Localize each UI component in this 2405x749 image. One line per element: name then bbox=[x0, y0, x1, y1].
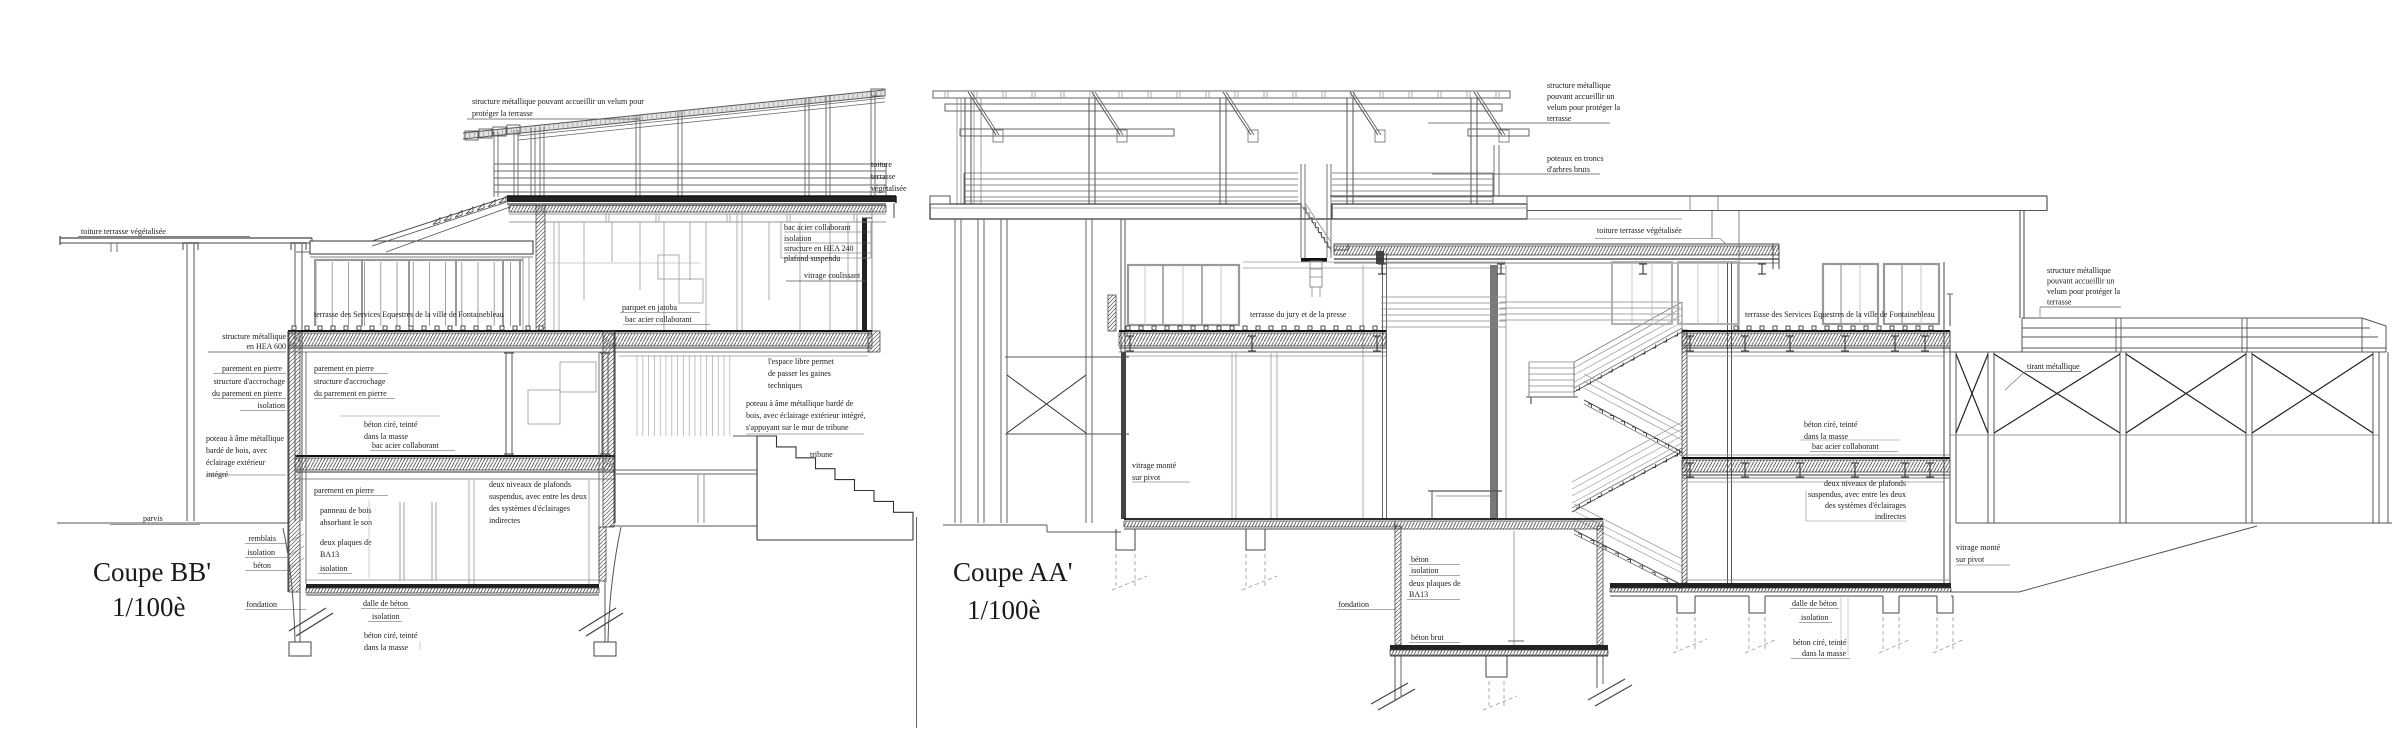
svg-text:végétalisée: végétalisée bbox=[871, 184, 907, 193]
svg-text:béton ciré, teinté: béton ciré, teinté bbox=[364, 631, 418, 640]
svg-text:pouvant accueillir un: pouvant accueillir un bbox=[1547, 92, 1615, 101]
svg-text:parement en pierre: parement en pierre bbox=[314, 486, 374, 495]
svg-text:plafond suspendu: plafond suspendu bbox=[784, 254, 840, 263]
svg-text:vitrage monté: vitrage monté bbox=[1132, 461, 1177, 470]
svg-text:béton: béton bbox=[1411, 555, 1429, 564]
svg-text:d'arbres bruts: d'arbres bruts bbox=[1547, 165, 1590, 174]
svg-text:remblais: remblais bbox=[248, 534, 276, 543]
svg-text:tirant métallique: tirant métallique bbox=[2027, 362, 2080, 371]
svg-text:isolation: isolation bbox=[1411, 566, 1439, 575]
svg-text:isolation: isolation bbox=[372, 612, 400, 621]
svg-text:isolation: isolation bbox=[247, 548, 275, 557]
svg-text:parquet en jatoba: parquet en jatoba bbox=[622, 303, 678, 312]
svg-text:terrasse des Services Equestre: terrasse des Services Equestres de la vi… bbox=[314, 310, 504, 319]
svg-text:parement en pierre: parement en pierre bbox=[314, 364, 374, 373]
svg-text:de passer les gaines: de passer les gaines bbox=[768, 369, 831, 378]
svg-text:structure métallique: structure métallique bbox=[222, 332, 286, 341]
svg-text:poteau à âme métallique: poteau à âme métallique bbox=[206, 434, 284, 443]
svg-text:pouvant accueillir un: pouvant accueillir un bbox=[2047, 277, 2115, 286]
svg-text:BA13: BA13 bbox=[1409, 590, 1428, 599]
svg-text:isolation: isolation bbox=[1801, 613, 1829, 622]
svg-text:tribune: tribune bbox=[810, 450, 833, 459]
svg-text:dalle de béton: dalle de béton bbox=[1792, 599, 1837, 608]
svg-text:isolation: isolation bbox=[784, 234, 812, 243]
svg-text:indirectes: indirectes bbox=[1875, 512, 1906, 521]
svg-text:béton ciré, teinté: béton ciré, teinté bbox=[1793, 638, 1847, 647]
svg-text:Coupe BB': Coupe BB' bbox=[93, 557, 211, 587]
svg-text:toiture terrasse végétalisée: toiture terrasse végétalisée bbox=[81, 227, 166, 236]
svg-text:deux niveaux de plafonds: deux niveaux de plafonds bbox=[489, 480, 571, 489]
svg-text:structure métallique: structure métallique bbox=[1547, 81, 1611, 90]
svg-text:terrasse des Services Equestre: terrasse des Services Equestres de la vi… bbox=[1745, 310, 1935, 319]
svg-text:éclairage extérieur: éclairage extérieur bbox=[206, 458, 266, 467]
svg-text:du parrement en pierre: du parrement en pierre bbox=[314, 389, 387, 398]
svg-text:structure métallique: structure métallique bbox=[2047, 266, 2111, 275]
svg-text:protéger la terrasse: protéger la terrasse bbox=[472, 109, 533, 118]
svg-text:béton brut: béton brut bbox=[1411, 633, 1444, 642]
svg-text:deux niveaux de plafonds: deux niveaux de plafonds bbox=[1824, 479, 1906, 488]
svg-text:parement en pierre: parement en pierre bbox=[222, 364, 282, 373]
svg-text:intégré: intégré bbox=[206, 470, 229, 479]
svg-text:velum pour protéger la: velum pour protéger la bbox=[1547, 103, 1621, 112]
svg-text:bac acier collaborant: bac acier collaborant bbox=[1812, 442, 1879, 451]
svg-text:béton: béton bbox=[253, 561, 271, 570]
svg-text:velum pour protéger la: velum pour protéger la bbox=[2047, 287, 2121, 296]
svg-text:dans la masse: dans la masse bbox=[364, 432, 408, 441]
svg-text:bac acier collaborant: bac acier collaborant bbox=[625, 315, 692, 324]
svg-text:l'espace libre permet: l'espace libre permet bbox=[768, 357, 835, 366]
svg-text:dans la masse: dans la masse bbox=[1804, 432, 1848, 441]
svg-text:bac acier collaborant: bac acier collaborant bbox=[784, 223, 851, 232]
svg-text:dalle de béton: dalle de béton bbox=[363, 599, 408, 608]
svg-text:toiture terrasse végétalisée: toiture terrasse végétalisée bbox=[1597, 226, 1682, 235]
svg-text:fondation: fondation bbox=[1338, 600, 1369, 609]
svg-text:dans la masse: dans la masse bbox=[1802, 649, 1846, 658]
svg-text:techniques: techniques bbox=[768, 381, 802, 390]
svg-text:béton ciré, teinté: béton ciré, teinté bbox=[364, 420, 418, 429]
svg-text:1/100è: 1/100è bbox=[112, 592, 186, 622]
svg-text:fondation: fondation bbox=[246, 600, 277, 609]
svg-text:parvis: parvis bbox=[143, 514, 163, 523]
svg-text:absorbant le son: absorbant le son bbox=[320, 518, 372, 527]
svg-text:poteau à âme métallique bardé: poteau à âme métallique bardé de bbox=[746, 399, 854, 408]
svg-text:vitrage monté: vitrage monté bbox=[1956, 543, 2001, 552]
svg-text:BA13: BA13 bbox=[320, 550, 339, 559]
svg-text:terrasse: terrasse bbox=[871, 172, 896, 181]
svg-text:s'appuyant sur le mur de tribu: s'appuyant sur le mur de tribune bbox=[746, 423, 849, 432]
svg-text:des systèmes d'éclairages: des systèmes d'éclairages bbox=[489, 504, 570, 513]
svg-text:suspendus, avec entre les deux: suspendus, avec entre les deux bbox=[489, 492, 587, 501]
svg-text:deux plaques de: deux plaques de bbox=[1409, 579, 1461, 588]
svg-text:structure en HEA 240: structure en HEA 240 bbox=[784, 244, 854, 253]
svg-text:bac acier collaborant: bac acier collaborant bbox=[372, 441, 439, 450]
svg-text:bois, avec éclairage extérieur: bois, avec éclairage extérieur intégré, bbox=[746, 411, 866, 420]
svg-text:panneau de bois: panneau de bois bbox=[320, 506, 372, 515]
svg-text:structure d'accrochage: structure d'accrochage bbox=[214, 377, 286, 386]
svg-text:poteaux en troncs: poteaux en troncs bbox=[1547, 154, 1603, 163]
svg-text:vitrage coulissant: vitrage coulissant bbox=[804, 271, 861, 280]
svg-text:isolation: isolation bbox=[320, 564, 348, 573]
svg-text:structure d'accrochage: structure d'accrochage bbox=[314, 377, 386, 386]
svg-text:suspendus, avec entre les deux: suspendus, avec entre les deux bbox=[1808, 490, 1906, 499]
svg-text:indirectes: indirectes bbox=[489, 516, 520, 525]
svg-text:sur pivot: sur pivot bbox=[1132, 473, 1161, 482]
svg-text:en HEA 600: en HEA 600 bbox=[246, 342, 286, 351]
svg-text:1/100è: 1/100è bbox=[967, 595, 1041, 625]
svg-text:toiture: toiture bbox=[871, 160, 892, 169]
svg-text:du parement en pierre: du parement en pierre bbox=[212, 389, 282, 398]
svg-text:béton ciré, teinté: béton ciré, teinté bbox=[1804, 420, 1858, 429]
svg-text:dans la masse: dans la masse bbox=[364, 643, 408, 652]
svg-text:terrasse: terrasse bbox=[1547, 114, 1572, 123]
svg-text:isolation: isolation bbox=[257, 401, 285, 410]
svg-text:bardé de bois, avec: bardé de bois, avec bbox=[206, 446, 268, 455]
svg-text:structure métallique pouvant a: structure métallique pouvant accueillir … bbox=[472, 97, 644, 106]
svg-text:terrasse du jury et de la pres: terrasse du jury et de la presse bbox=[1250, 310, 1347, 319]
svg-text:des systèmes d'éclairages: des systèmes d'éclairages bbox=[1825, 501, 1906, 510]
svg-text:deux plaques de: deux plaques de bbox=[320, 538, 372, 547]
svg-text:Coupe AA': Coupe AA' bbox=[953, 557, 1073, 587]
svg-text:sur pivot: sur pivot bbox=[1956, 555, 1985, 564]
svg-text:terrasse: terrasse bbox=[2047, 298, 2072, 307]
